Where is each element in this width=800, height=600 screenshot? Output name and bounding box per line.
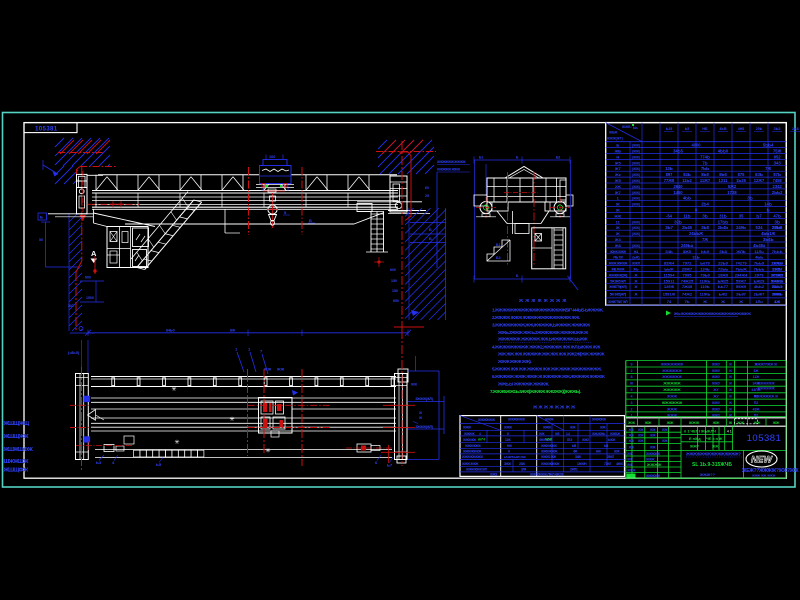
svg-text:Ж: Ж (634, 279, 638, 283)
svg-text:ЖЖЖЖЖЖ: ЖЖЖЖЖЖ (661, 375, 682, 379)
svg-text:(ЖЖ): (ЖЖ) (632, 179, 640, 183)
svg-text:ЗЬ7: ЗЬ7 (665, 225, 674, 230)
svg-text:2З42: 2З42 (772, 184, 782, 189)
svg-text:ЖЖЖЖЖЖЖ: ЖЖЖЖЖЖЖ (540, 462, 559, 466)
svg-text:ЗЬ97: ЗЬ97 (736, 292, 747, 297)
svg-text:ЖЖ: ЖЖ (649, 428, 656, 432)
svg-text:Б1: Б1 (479, 156, 483, 160)
svg-text:(ЖЖ): (ЖЖ) (632, 185, 640, 189)
svg-text:ЖЖЖЖЖ ЖЖЖ: ЖЖЖЖЖ ЖЖЖ (436, 168, 461, 172)
svg-text:ЖЖ: ЖЖ (628, 428, 635, 432)
svg-text:79Ь9: 79Ь9 (700, 272, 710, 277)
svg-text:m/Ч: m/Ч (478, 437, 485, 441)
svg-text:25Ь: 25Ь (756, 127, 763, 131)
svg-text:ЖЖ5-Ж: ЖЖ5-Ж (609, 432, 620, 436)
svg-text:7Ж45: 7Ж45 (682, 284, 693, 289)
svg-text:(=8Ь5): (=8Ь5) (68, 351, 80, 355)
svg-text:1211: 1211 (719, 178, 729, 183)
svg-text:2ЗЬ9: 2ЗЬ9 (718, 261, 729, 266)
svg-text:Ж5: Ж5 (614, 160, 622, 165)
svg-text:ЬЬ9: ЬЬ9 (701, 249, 710, 254)
svg-text:105381: 105381 (747, 433, 782, 444)
svg-text:12Ж7: 12Ж7 (754, 178, 765, 183)
svg-text:ЖЖЖ: ЖЖЖ (666, 395, 677, 399)
svg-text:ЖЖЖ: ЖЖЖ (688, 421, 700, 425)
svg-text:(ЖЖ): (ЖЖ) (632, 197, 640, 201)
svg-text:ЖЖУ: ЖЖУ (711, 407, 721, 411)
svg-text:(ЖЖ): (ЖЖ) (632, 173, 640, 177)
svg-text:П2: П2 (754, 414, 758, 418)
svg-text:Ь25: Ь25 (666, 127, 673, 131)
svg-text:З4З: З4З (773, 160, 781, 165)
svg-text:2Ж57: 2Ж57 (772, 267, 783, 272)
svg-text:8ЗЬ: 8ЗЬ (755, 172, 763, 177)
svg-text:2Ь45: 2Ь45 (682, 225, 692, 230)
svg-text:ЖШЩЖЩ: ЖШЩЖЩ (3, 421, 30, 427)
svg-text:ЖЖ: ЖЖ (628, 433, 635, 437)
svg-text:Ь5: Ь5 (156, 462, 162, 467)
svg-text:84Ь: 84Ь (683, 172, 691, 177)
svg-text:ЖЖЖ: ЖЖЖ (626, 468, 637, 472)
svg-text:ЖЛЬ: ЖЛЬ (735, 249, 745, 254)
svg-text:-54: -54 (666, 213, 673, 218)
svg-text:2ЬЖ7: 2ЬЖ7 (754, 292, 766, 297)
svg-text:Ь5: Ь5 (685, 127, 690, 131)
svg-text:(ЖЖ): (ЖЖ) (632, 155, 640, 159)
svg-text:5Ж 9Ж5 ЖЛ: 5Ж 9Ж5 ЖЛ (610, 279, 626, 283)
svg-text:17ЬЬ: 17ЬЬ (718, 219, 728, 224)
svg-text:249Ьa: 249Ьa (681, 243, 694, 248)
svg-text:ЖЖ2: ЖЖ2 (581, 438, 589, 442)
svg-text:Ь7: Ь7 (387, 463, 393, 468)
svg-text:Б: Б (40, 215, 43, 220)
svg-text:3: 3 (631, 401, 633, 405)
svg-text:4ЗЖ: 4ЗЖ (753, 407, 761, 411)
svg-text:249Ь: 249Ь (736, 225, 746, 230)
svg-text:31Ь: 31Ь (719, 213, 727, 218)
svg-text:ЖЖЖ??: ЖЖЖ?? (699, 473, 716, 477)
svg-text:ЬЬ77: ЬЬ77 (718, 284, 729, 289)
svg-text:2Ж: 2Ж (615, 184, 621, 189)
svg-text:Ж7: Ж7 (614, 190, 622, 195)
svg-text:✳: ✳ (174, 439, 179, 446)
svg-text:59Ж9: 59Ж9 (736, 284, 747, 289)
svg-text:ЖЖЬ.2ЖЖЖ ЖЖ Ь.2ЖЖЖЖЖЖ ЖЖЖЖ.ЖЖ: ЖЖЬ.2ЖЖЖ ЖЖ Ь.2ЖЖЖЖЖЖ ЖЖЖЖ.ЖЖ Ж (497, 330, 589, 335)
svg-text:ЖЖБ:: ЖЖБ: (621, 125, 632, 129)
svg-text:24ЖЬ: 24ЖЬ (772, 261, 783, 266)
svg-text:7ЬЬЬ: 7ЬЬЬ (754, 267, 765, 272)
svg-text:Б: Б (429, 237, 432, 241)
svg-text:13Ь: 13Ь (665, 166, 673, 171)
svg-text:1: 1 (631, 414, 633, 418)
svg-text:17З8: 17З8 (727, 190, 737, 195)
svg-text:5Ж2: 5Ж2 (728, 184, 737, 189)
svg-text:ЖШЩФЖ: ЖШЩФЖ (3, 468, 30, 474)
svg-text:ЖЖ: ЖЖ (711, 445, 719, 449)
svg-text:ЖЖ-ЖЖЬ: ЖЖ-ЖЖЬ (591, 432, 606, 436)
svg-text:ЖЖ: ЖЖ (666, 421, 674, 425)
svg-text:4ЬЬ1Ж: 4ЬЬ1Ж (761, 231, 775, 236)
svg-text:119Ь: 119Ь (700, 284, 709, 289)
svg-text:ЖЖЖЖЖ(2Ж): ЖЖЖЖЖ(2Ж) (608, 273, 628, 277)
svg-text:(ЖЖ): (ЖЖ) (632, 191, 640, 195)
svg-text:ЖЖЖГЛЖЖ Ж: ЖЖЖГЛЖЖ Ж (754, 362, 777, 366)
svg-text:4ЬЬ: 4ЬЬ (683, 196, 691, 201)
svg-text:ЬЬЖ: ЬЬЖ (664, 267, 674, 272)
svg-text:ЬЖ29: ЬЖ29 (754, 278, 766, 283)
svg-text:Ж: Ж (418, 411, 422, 415)
svg-text:4ЬЬ: 4ЬЬ (755, 255, 763, 260)
svg-text:8Ж5: 8Ж5 (683, 249, 692, 254)
svg-text:14Ь: 14Ь (764, 202, 772, 207)
svg-text:50: 50 (39, 238, 43, 242)
svg-text:(ЖЖ): (ЖЖ) (632, 244, 640, 248)
svg-text:34Ь5: 34Ь5 (673, 149, 683, 154)
svg-text:(ЬЖ): (ЬЖ) (632, 256, 639, 260)
svg-text:ЖЖЖ ЖЖЖ: ЖЖЖ ЖЖЖ (609, 250, 626, 254)
svg-text:ЗЬ: ЗЬ (774, 219, 780, 224)
svg-text:ЖЖЖЖЖЖ ЛЖЛ 4Ж2Ж: ЖЖЖЖЖЖ ЛЖЛ 4Ж2Ж (529, 473, 565, 477)
svg-text:ЖБ: ЖБ (614, 149, 622, 154)
svg-text:Е пЖд: Е пЖд (689, 437, 701, 441)
svg-text:7Ж: 7Ж (765, 166, 771, 171)
svg-text:94ЖЬ: 94ЖЬ (772, 292, 783, 297)
svg-text:ЖЖЖЖ: ЖЖЖЖ (646, 462, 662, 467)
svg-text:7Ь: 7Ь (702, 160, 707, 165)
svg-text:ЖЖ: ЖЖ (628, 446, 635, 450)
svg-text:Ь679: Ь679 (700, 261, 710, 266)
svg-text:ЖЖЖ: ЖЖЖ (542, 426, 551, 430)
svg-text:Б2: Б2 (556, 156, 560, 160)
svg-text:П2: П2 (754, 401, 758, 405)
svg-text:ЖЖЖЖЖЖЖ Ж: ЖЖЖЖЖЖЖ Ж (753, 395, 778, 399)
svg-text:7ЬЬ: 7ЬЬ (701, 166, 709, 171)
svg-text:150: 150 (392, 289, 398, 293)
svg-text:ЖЖЖЖЖ: ЖЖЖЖЖ (645, 474, 661, 478)
svg-text:ЖЬ:ЖЖЖЖЖЖЖЖЖЖЖЖЖЖЖЖЖЖЖЖЖ: ЖЬ:ЖЖЖЖЖЖЖЖЖЖЖЖЖЖЖЖЖЖЖЖЖ (673, 311, 751, 316)
svg-text:ЖЖЖЖЖЖ: ЖЖЖЖЖЖ (661, 369, 682, 373)
svg-text:ЖЖЖЖЖЖ ЖЛ: ЖЖЖЖЖЖ ЖЛ (465, 468, 488, 472)
svg-text:Ж: Ж (720, 299, 725, 304)
svg-text:ЖЖЖ2 ЖЖ: ЖЖЖ2 ЖЖ (540, 455, 556, 459)
svg-text:ЖЖЖЖЖ: ЖЖЖЖЖ (462, 438, 476, 442)
svg-text:5: 5 (631, 388, 633, 392)
svg-text:4.ЖЖЖЖЖЖЖЖЖ ЖЖЖ2,ЖЖЖЖЖ ЖЖ ЖЛ.Ь: 4.ЖЖЖЖЖЖЖЖЖ ЖЖЖ2,ЖЖЖЖЖ ЖЖ ЖЛ.ЬЖЖЖ ЖЖ (492, 345, 601, 350)
svg-text:Б2: Б2 (496, 256, 501, 260)
svg-text:Ь7: Ь7 (756, 213, 762, 218)
svg-text:7Ь: 7Ь (684, 299, 689, 304)
svg-text:ЖЖЖЖЖЖ: ЖЖЖЖЖЖ (477, 418, 496, 422)
svg-text:8: 8 (631, 375, 633, 379)
svg-text:ШЖЖЩЖ: ШЖЖЩЖ (4, 459, 30, 465)
svg-text:Б1: Б1 (496, 243, 501, 247)
svg-text:25Ж7: 25Ж7 (607, 455, 615, 459)
svg-text:100: 100 (269, 155, 275, 159)
svg-text:8Ж: 8Ж (230, 328, 236, 332)
svg-text:ЬЖ2: ЬЖ2 (719, 292, 728, 297)
svg-text:4: 4 (631, 395, 633, 399)
svg-text:3.ЖЖЖЖЖЖЖЖ,ЖЖ,ЖЖЖЖЖ,ЬЖЖЖЖ ЖЖЖЖ: 3.ЖЖЖЖЖЖЖЖ,ЖЖ,ЖЖЖЖЖ,ЬЖЖЖЖ ЖЖЖЖЖ (492, 323, 591, 328)
svg-text:Ж: Ж (615, 208, 620, 213)
svg-text:Ч/Чt: Ч/Чt (545, 437, 553, 441)
svg-text:ЖЖЖЖЖЖ: ЖЖЖЖЖЖ (507, 418, 526, 422)
svg-text:ЖЖЖ ЖЖЖЖ: ЖЖЖ ЖЖЖЖ (607, 262, 627, 266)
svg-text:9 4ЖЬ: 9 4ЖЬ (771, 278, 783, 283)
svg-text:72ЬЬ: 72ЬЬ (718, 267, 728, 272)
svg-text:✳: ✳ (171, 386, 176, 393)
svg-text:Ж: Ж (728, 414, 732, 418)
svg-text:ЖЖЖЖЖЖ: ЖЖЖЖЖЖ (756, 382, 774, 386)
svg-text:ЖЖЖЖЖЖЖЖЖЖЖЖЖЖЖ?: ЖЖЖЖЖЖЖЖЖЖЖЖЖЖЖ? (685, 452, 741, 457)
svg-text:ЖЖЖ: ЖЖЖ (666, 407, 677, 411)
svg-text:129Ж: 129Ж (664, 284, 675, 289)
svg-text:НБ: НБ (702, 127, 708, 131)
svg-text:59Ж7: 59Ж7 (736, 278, 747, 283)
svg-text:2ЗЖ: 2ЗЖ (519, 462, 525, 466)
svg-text:ЖЖ: ЖЖ (637, 433, 644, 437)
svg-text:47Ь: 47Ь (773, 213, 781, 218)
svg-text:ЖЖ: ЖЖ (276, 367, 285, 372)
svg-text:74Ж2: 74Ж2 (682, 292, 693, 297)
svg-text:ЖЖЛ: ЖЖЛ (631, 262, 641, 266)
svg-text:Ж4: Ж4 (614, 237, 622, 242)
svg-text:74279: 74279 (735, 261, 747, 266)
svg-text:Ж: Ж (728, 388, 732, 392)
svg-text:Ж: Ж (728, 421, 733, 425)
svg-text:ЖЖУ: ЖЖУ (711, 382, 721, 386)
svg-text:ЖЖ: ЖЖ (637, 439, 644, 443)
svg-text:ЖЖУ: ЖЖУ (711, 362, 721, 366)
svg-text:Ж: Ж (738, 299, 743, 304)
svg-text:1450: 1450 (673, 190, 683, 195)
svg-text:ЖВ ЖЖЖ: ЖВ ЖЖЖ (610, 268, 624, 272)
svg-text:Ж7: Ж7 (614, 166, 622, 171)
svg-text:1.4: 1.4 (566, 432, 570, 436)
svg-text:6.ЖЖЖЖЖ ЖЖЖ ЖЖЖ Ж ЖЖЖЖЖ ЖЖ,ЖЖЖ: 6.ЖЖЖЖЖ ЖЖЖ ЖЖЖ Ж ЖЖЖЖЖ ЖЖ,ЖЖЖЖЖ ЖЖЖЖ (492, 374, 606, 379)
svg-text:ЖБЖ: ЖБЖ (608, 131, 618, 135)
svg-text:5З4: 5З4 (755, 225, 763, 230)
svg-text:4ЬЬ0: 4ЬЬ0 (718, 149, 729, 154)
svg-text:ЗЬ8: ЗЬ8 (719, 249, 727, 254)
svg-text:ЖЖ: ЖЖ (569, 426, 576, 430)
svg-text:ЖЖЖ: ЖЖЖ (503, 426, 512, 430)
svg-text:ЗЬ4Ь: ЗЬ4Ь (763, 237, 774, 242)
svg-text:З2Ь: З2Ь (674, 219, 682, 224)
svg-text:ЖЬ: ЖЬ (632, 268, 639, 272)
svg-text:24ЬЬЖ: 24ЬЬЖ (689, 231, 703, 236)
svg-text:ЖШЩЖЖ: ЖШЩЖЖ (3, 434, 30, 440)
svg-text:ЖЖ ЖЖ ЖЖ ЖЖЖЖЖ ЖЖ ЖЖ ЖЖ ЖЖ2Ж(Ж: ЖЖ ЖЖ ЖЖ ЖЖЖЖЖ ЖЖ ЖЖ ЖЖ ЖЖ2Ж(ЖЖ ЖЖЖЖ (497, 352, 605, 357)
svg-text:1Ж: 1Ж (774, 299, 780, 304)
svg-text:Ж: Ж (728, 382, 732, 386)
svg-text:ЖЖ: ЖЖ (628, 439, 635, 443)
svg-text:ЬЖ25: ЬЖ25 (718, 278, 730, 283)
svg-text:11Лu: 11Лu (754, 249, 764, 254)
svg-text:ЬЬ: ЬЬ (633, 126, 638, 130)
svg-text:ЖЖЖЖ: ЖЖЖЖ (463, 432, 475, 436)
svg-text:Ж: Ж (728, 362, 732, 366)
svg-text:2: 2 (631, 407, 633, 411)
svg-text:ЖЖЖЖЖЖ: ЖЖЖЖЖЖ (540, 444, 557, 448)
svg-text:Ж8: Ж8 (614, 243, 622, 248)
svg-text:(ЖЖ): (ЖЖ) (632, 161, 640, 165)
svg-text:ЖЖ: ЖЖ (599, 426, 606, 430)
svg-text:ЖЖЖ ЖЖЖ ЖЖ).: ЖЖЖ ЖЖЖ ЖЖ). (497, 359, 531, 364)
svg-text:11Ж7: 11Ж7 (700, 178, 711, 183)
svg-text:4000: 4000 (691, 143, 701, 148)
svg-text:ЖЛ: ЖЛ (67, 304, 74, 308)
svg-text:4ЬВ: 4ЬВ (719, 127, 727, 131)
svg-text:4ЬЬ2: 4ЬЬ2 (754, 284, 765, 289)
svg-text:11ЖЬ: 11ЖЬ (700, 292, 711, 297)
svg-text:A: A (91, 249, 97, 258)
svg-text:5ЬЬ4: 5ЬЬ4 (763, 143, 774, 148)
svg-text:ЖЖУ: ЖЖУ (711, 414, 721, 418)
svg-text:ЖЖЖЖЖ: ЖЖЖЖЖ (662, 388, 681, 392)
svg-text:Ь3: Ь3 (96, 460, 102, 465)
svg-text:ЖЖЖ: ЖЖЖ (544, 418, 555, 422)
svg-text:1ЖЖ/Н: 1ЖЖ/Н (577, 462, 587, 466)
svg-text:ЖЖ9779(ЖЛ): ЖЖ9779(ЖЛ) (608, 285, 626, 289)
svg-text:З4Ж: З4Ж (575, 455, 581, 459)
svg-text:ЬЖЖ: ЬЖЖ (608, 438, 615, 442)
svg-text:ЗЬ: ЗЬ (702, 213, 708, 218)
svg-text:ЖЖ: ЖЖ (753, 421, 761, 425)
svg-text:15911: 15911 (664, 278, 676, 283)
svg-text:150: 150 (391, 279, 397, 283)
svg-text:60: 60 (425, 186, 429, 190)
svg-text:Ж4: Ж4 (633, 250, 639, 254)
svg-text:✳: ✳ (229, 416, 234, 423)
svg-text:7ЬЬ9: 7ЬЬ9 (754, 261, 765, 266)
svg-text:(ЖЖ): (ЖЖ) (632, 144, 640, 148)
svg-text:ЖЖЖ: ЖЖЖ (645, 457, 656, 461)
svg-text:Ь5-ЖЛ5.ЬЖ5-74Ж: Ь5-ЖЛ5.ЬЖ5-74Ж (504, 455, 526, 459)
svg-text:ЖЖЖЖ ЖЖ: ЖЖЖЖ ЖЖ (540, 450, 557, 454)
svg-text:2979: 2979 (755, 272, 765, 277)
svg-text:ЖЖР: ЖЖР (689, 445, 699, 449)
svg-text:7ЖЬ9: 7ЖЬ9 (772, 284, 784, 289)
svg-text:Ж: Ж (615, 231, 620, 236)
svg-text:11594: 11594 (664, 272, 676, 277)
svg-text:ЖШЖЩФЖ: ЖШЖЩФЖ (3, 447, 34, 453)
svg-text:77Ж7: 77Ж7 (604, 462, 612, 466)
svg-text:ЖЖЖЖЖЖ: ЖЖЖЖЖЖ (464, 444, 481, 448)
svg-text:11ЖЬ: 11ЖЬ (700, 278, 711, 283)
svg-text:ЖЖЬ.Ь! ЖЖЖЖЖ ЖЖЖЖ.: ЖЖЬ.Ь! ЖЖЖЖЖ ЖЖЖЖ. (497, 382, 549, 387)
svg-text:Ж5: Ж5 (614, 178, 622, 183)
svg-text:952: 952 (774, 154, 782, 159)
svg-text:600: 600 (85, 276, 91, 280)
svg-text:Б: Б (616, 143, 619, 148)
svg-text:74Ь 7Ж: 74Ь 7Ж (613, 256, 623, 260)
svg-text:87Ь: 87Ь (773, 172, 781, 177)
svg-text:87.5: 87.5 (567, 438, 573, 442)
svg-text:ЖЖЖЖЖЖ ЖЖЖЖ: ЖЖЖЖЖЖ ЖЖЖЖ (436, 160, 467, 164)
svg-text:75Ж: 75Ж (773, 149, 782, 154)
svg-text:Ж: Ж (634, 285, 638, 289)
svg-text:7ЬЬЬ: 7ЬЬЬ (772, 249, 783, 254)
svg-text:ЖЖ: ЖЖ (649, 446, 656, 450)
svg-text:25: 25 (425, 194, 429, 198)
svg-text:ЗЖЖЖ(ЖЛ): ЗЖЖЖ(ЖЛ) (415, 397, 432, 401)
svg-text:Ж: Ж (702, 299, 707, 304)
svg-text:ЖЖУ: ЖЖУ (711, 375, 721, 379)
svg-text:11Ь2: 11Ь2 (682, 178, 692, 183)
svg-text:875: 875 (738, 172, 746, 177)
svg-text:Н: Н (616, 154, 619, 159)
svg-text:4Ь48a: 4Ь48a (753, 243, 766, 248)
svg-text:ЗЖЖЖ(ЖЛ): ЗЖЖЖ(ЖЛ) (415, 425, 432, 429)
svg-text:SL 1Ь.9-315ЖЧБ: SL 1Ь.9-315ЖЧБ (692, 462, 732, 468)
svg-text:Ж Ж Ж Ж Ж Ж Ж Ж: Ж Ж Ж Ж Ж Ж Ж Ж (532, 405, 576, 410)
svg-text:4Н5: 4Н5 (738, 127, 745, 131)
svg-text:2ЬЬ2: 2ЬЬ2 (772, 190, 783, 195)
svg-text:8Ь8: 8Ь8 (701, 172, 709, 177)
svg-text:29Ж7: 29Ж7 (682, 267, 693, 272)
svg-text:11Ж: 11Ж (753, 375, 761, 379)
svg-text:ЗЖЖ: ЗЖЖ (504, 462, 511, 466)
svg-text:74Ж25: 74Ж25 (681, 278, 694, 283)
svg-text:ЖЖ: ЖЖ (736, 421, 744, 425)
svg-text:8Ь6: 8Ь6 (719, 172, 727, 177)
svg-text:9: 9 (631, 362, 633, 366)
svg-text:7.ЖЖЖ5ЖЖ1Ь.5ЖЖ(ЖЖЖЖ ЖЖ2ЖЖ)(ЖЖЖ: 7.ЖЖЖ5ЖЖ1Ь.5ЖЖ(ЖЖЖЖ ЖЖ2ЖЖ)(ЖЖЖЬ). (490, 389, 581, 394)
svg-text:7458: 7458 (773, 178, 783, 183)
svg-text:19Ж9: 19Ж9 (718, 272, 729, 277)
svg-text:8ЗЖ4: 8ЗЖ4 (664, 261, 675, 266)
svg-text:Ж: Ж (634, 273, 638, 277)
svg-text:ЖЖУ: ЖЖУ (711, 369, 721, 373)
svg-text:ЖЖЖ: ЖЖЖ (462, 426, 471, 430)
svg-text:124Ь: 124Ь (700, 267, 710, 272)
svg-text:ЖЖ: ЖЖ (712, 421, 720, 425)
svg-text:5.ЖЖЖЖ ЖЖ ЖЖ ЖЖЖЖ ЖЖ ЖЖ ЖЖЖ ЖЖ: 5.ЖЖЖЖ ЖЖ ЖЖ ЖЖЖЖ ЖЖ ЖЖ ЖЖЖ ЖЖЖЖЖЖЖЖ. (492, 367, 602, 372)
svg-text:Ж5: Ж5 (554, 432, 560, 436)
svg-text:ЖЖ: ЖЖ (410, 383, 417, 387)
svg-text:ЖЖ: ЖЖ (661, 428, 668, 432)
svg-text:7995: 7995 (683, 272, 693, 277)
svg-text:ЖЖ: ЖЖ (649, 433, 656, 437)
svg-text:З5: З5 (739, 213, 745, 218)
svg-text:ЖЖ: ЖЖ (627, 421, 635, 425)
svg-text:ЖЖЖ ЖЖЖ: ЖЖЖ ЖЖЖ (461, 462, 478, 466)
svg-text:ЖЖ977927 ЖЛ: ЖЖ977927 ЖЛ (607, 300, 628, 304)
svg-text:7ЬЬЖ: 7ЬЬЖ (735, 267, 747, 272)
svg-text:774Ь: 774Ь (700, 154, 710, 159)
svg-text:Ж: Ж (728, 395, 732, 399)
svg-text:(ЖЖ): (ЖЖ) (632, 150, 640, 154)
svg-text:ЖЖЖЖЖЖЖ: ЖЖЖЖЖЖЖ (660, 362, 684, 366)
svg-text:74: 74 (667, 299, 672, 304)
svg-text:Ж: Ж (615, 202, 620, 207)
svg-text:7Ж: 7Ж (702, 237, 708, 242)
svg-text:Б: Б (429, 228, 432, 232)
svg-text:НЖ: НЖ (507, 444, 512, 448)
svg-text:1Лu: 1Лu (755, 299, 763, 304)
svg-text:ЖЖ: ЖЖ (538, 432, 545, 436)
svg-text:Ж: Ж (615, 225, 620, 230)
svg-text:Ж: Ж (418, 416, 422, 420)
svg-text:✳: ✳ (265, 448, 270, 455)
svg-text:4 1: 4 1 (727, 430, 732, 434)
svg-text:(ЖЖ): (ЖЖ) (632, 167, 640, 171)
svg-text:ЗЬ8: ЗЬ8 (701, 225, 710, 230)
svg-text:11Ь: 11Ь (683, 213, 690, 218)
svg-text:З4Ь: З4Ь (665, 249, 673, 254)
svg-text:ЖЖЖЖЖЖ ЖЖЖЖЖ ЖЖ.ЬЖЖЖЖЖЖ.ЬЬЖЖ: ЖЖЖЖЖЖ ЖЖЖЖЖ ЖЖ.ЬЖЖЖЖЖЖ.ЬЬЖЖ (497, 337, 589, 342)
svg-text:84Ь0: 84Ь0 (166, 328, 175, 332)
